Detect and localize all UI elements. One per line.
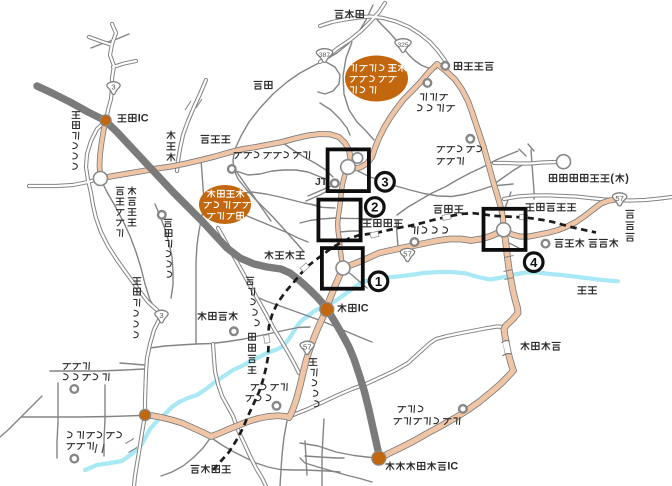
svg-text:3: 3 <box>111 83 115 92</box>
svg-text:387: 387 <box>319 52 330 59</box>
svg-text:IC: IC <box>447 461 458 473</box>
svg-text:1: 1 <box>375 274 382 289</box>
svg-text:IC: IC <box>138 113 149 125</box>
svg-text:(: ( <box>610 173 614 185</box>
svg-text:3: 3 <box>381 174 388 189</box>
svg-text:): ) <box>625 173 629 185</box>
svg-text:57: 57 <box>615 194 623 203</box>
svg-text:325: 325 <box>397 42 408 49</box>
svg-text:2: 2 <box>371 200 378 215</box>
svg-text:3: 3 <box>159 311 163 320</box>
svg-text:4: 4 <box>530 255 538 270</box>
svg-text:IC: IC <box>358 303 369 315</box>
svg-text:57: 57 <box>403 250 411 259</box>
svg-text:57: 57 <box>303 342 311 351</box>
svg-text:JT: JT <box>315 176 328 188</box>
